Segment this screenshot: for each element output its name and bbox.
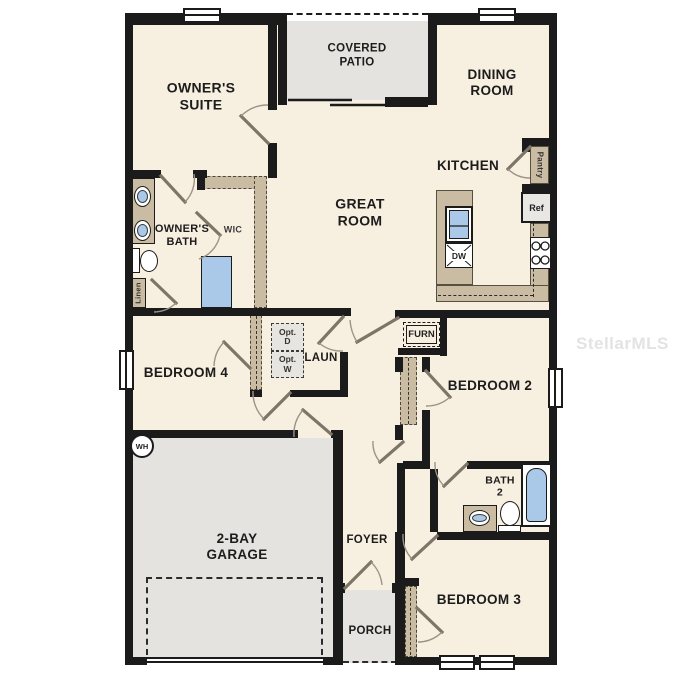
shower — [201, 256, 232, 308]
label-line: COVERED — [328, 42, 387, 56]
bathroom-sink — [469, 510, 490, 526]
counter-edge-dashed — [438, 295, 533, 296]
wall — [133, 308, 259, 316]
wall — [197, 178, 205, 190]
bathtub-basin — [526, 468, 547, 522]
window — [548, 368, 563, 408]
window — [479, 655, 515, 670]
closet-rod-dashed — [410, 588, 411, 655]
wic-wall-band-right — [254, 176, 267, 308]
label-line: BATH — [155, 236, 209, 249]
wall — [395, 310, 557, 318]
closet-rod-dashed — [408, 358, 409, 424]
room-label-bedroom2: BEDROOM 2 — [448, 378, 532, 394]
wall — [522, 184, 549, 192]
wall — [333, 583, 345, 593]
label-line: Pantry — [536, 152, 545, 179]
room-label-dining-room: DINING ROOM — [467, 67, 516, 99]
garage-door-sill — [146, 661, 323, 663]
toilet — [140, 250, 158, 272]
label-line: OWNER'S — [167, 79, 235, 96]
label-line: FOYER — [346, 534, 387, 548]
garage-door-sill — [146, 657, 323, 659]
furnace-label: FURN — [408, 329, 434, 340]
wall — [430, 469, 438, 532]
wall — [405, 578, 419, 586]
opt-washer-box: Opt. W — [271, 351, 304, 378]
garage-door-outline — [146, 577, 323, 655]
label-line: BEDROOM 4 — [144, 365, 228, 381]
closet-rod-dashed — [256, 316, 257, 389]
room-label-bedroom3: BEDROOM 3 — [437, 592, 521, 608]
wall — [133, 430, 298, 438]
label-line: SUITE — [167, 96, 235, 113]
wall — [278, 13, 287, 105]
label-line: DINING — [467, 67, 516, 83]
label-line: BATH — [485, 475, 515, 487]
furnace-box: FURN — [406, 325, 437, 344]
label-line: LAUN — [304, 352, 337, 366]
label-line: PATIO — [328, 56, 387, 70]
water-heater: WH — [130, 434, 154, 458]
label-line: BEDROOM 2 — [448, 378, 532, 394]
wall — [403, 461, 430, 469]
bathroom-sink — [134, 186, 151, 207]
room-label-bedroom4: BEDROOM 4 — [144, 365, 228, 381]
room-label-covered-patio: COVERED PATIO — [328, 42, 387, 69]
wall — [250, 390, 262, 397]
wall — [385, 97, 428, 107]
wall — [515, 657, 557, 665]
stove — [530, 237, 551, 269]
window — [183, 8, 221, 23]
wall — [392, 583, 405, 593]
room-label-laundry: LAUN — [304, 352, 337, 366]
wall — [133, 170, 161, 178]
toilet — [498, 525, 521, 532]
wall — [333, 430, 343, 665]
label-line: KITCHEN — [437, 158, 499, 174]
window — [439, 655, 475, 670]
wall — [268, 143, 277, 178]
wall — [268, 13, 277, 110]
room-label-garage: 2-BAY GARAGE — [206, 531, 267, 563]
opt-dryer-label: D — [284, 337, 290, 346]
linen-label: Linen — [135, 282, 144, 304]
wall — [522, 138, 530, 152]
wall — [422, 357, 430, 372]
label-line: PORCH — [348, 625, 391, 639]
kitchen-sink-basin — [449, 210, 469, 239]
opt-dryer-box: Opt. D — [271, 323, 304, 351]
water-heater-label: WH — [136, 442, 149, 451]
label-line: OWNER'S — [155, 223, 209, 236]
window — [478, 8, 516, 23]
wall — [193, 170, 207, 178]
wall — [125, 657, 147, 665]
dishwasher: DW — [445, 243, 473, 268]
label-line: WIC — [224, 225, 242, 236]
bathroom-sink — [134, 220, 151, 241]
patio-roof-line — [287, 13, 428, 15]
wall — [125, 13, 133, 665]
refrigerator: Ref — [521, 192, 552, 223]
window — [119, 350, 134, 390]
wall — [437, 532, 557, 540]
room-label-foyer: FOYER — [346, 534, 387, 548]
wall — [398, 348, 447, 355]
label-line: GARAGE — [206, 547, 267, 563]
room-label-great-room: GREAT ROOM — [335, 195, 384, 228]
dishwasher-label: DW — [451, 251, 467, 261]
wall — [259, 308, 351, 316]
opt-washer-label: W — [283, 365, 291, 374]
label-line: 2-BAY — [206, 531, 267, 547]
wall — [395, 357, 403, 372]
label-line: GREAT — [335, 195, 384, 212]
room-label-kitchen: KITCHEN — [437, 158, 499, 174]
label-line: ROOM — [335, 212, 384, 229]
room-label-bath2: BATH 2 — [485, 475, 515, 500]
refrigerator-label: Ref — [529, 203, 544, 213]
wall — [549, 13, 557, 665]
label-line: ROOM — [467, 83, 516, 99]
room-label-porch: PORCH — [348, 625, 391, 639]
room-label-owners-suite: OWNER'S SUITE — [167, 79, 235, 112]
label-line: 2 — [485, 487, 515, 499]
wall — [290, 390, 348, 397]
label-line: BEDROOM 3 — [437, 592, 521, 608]
room-label-wic: WIC — [224, 225, 242, 236]
toilet — [500, 501, 520, 526]
floor-plan: Opt. D Opt. W FURN Ref DW WH — [0, 0, 687, 687]
wall — [422, 410, 430, 463]
wall — [428, 13, 437, 105]
pantry-label: Pantry — [535, 152, 544, 179]
wall — [395, 532, 405, 665]
wall — [395, 425, 403, 440]
label-line: Linen — [134, 282, 143, 304]
stellar-mls-watermark: StellarMLS — [576, 334, 669, 354]
bedroom3-closet-band — [405, 586, 417, 657]
toilet — [132, 248, 140, 273]
wall — [397, 463, 405, 533]
room-label-owners-bath: OWNER'S BATH — [155, 223, 209, 249]
